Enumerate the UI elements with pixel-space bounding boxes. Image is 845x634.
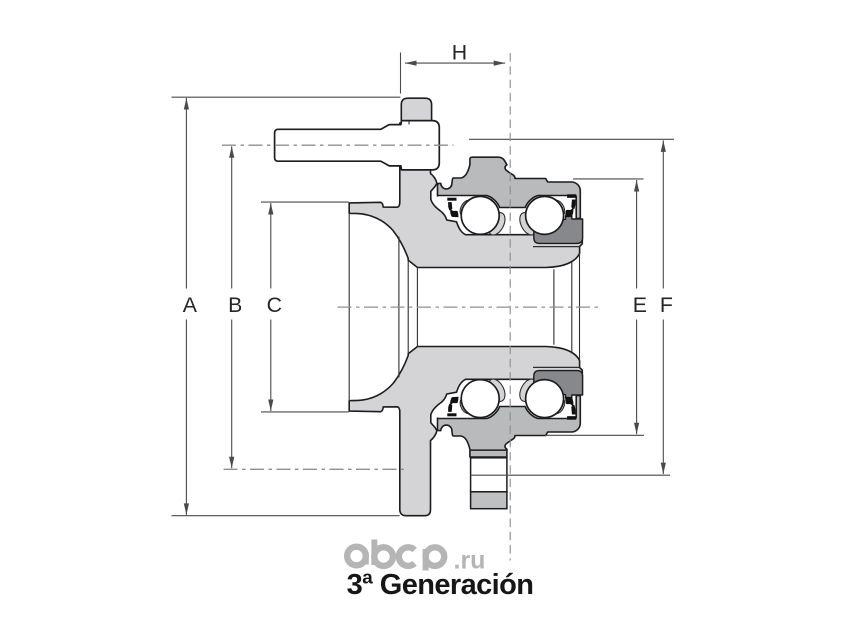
svg-text:A: A [183, 293, 198, 317]
svg-text:C: C [267, 293, 282, 317]
svg-text:E: E [633, 293, 647, 317]
svg-text:H: H [452, 41, 467, 65]
svg-text:3ª Generación: 3ª Generación [347, 569, 534, 601]
svg-text:F: F [660, 293, 673, 317]
svg-text:B: B [228, 293, 242, 317]
